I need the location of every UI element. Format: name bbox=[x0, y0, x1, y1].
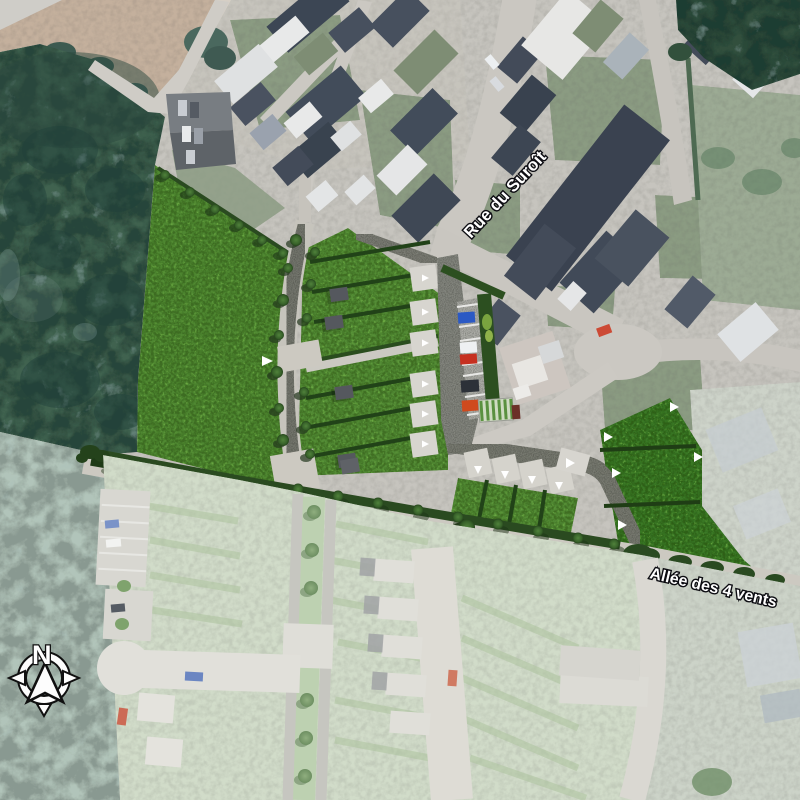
svg-text:N: N bbox=[32, 640, 52, 670]
